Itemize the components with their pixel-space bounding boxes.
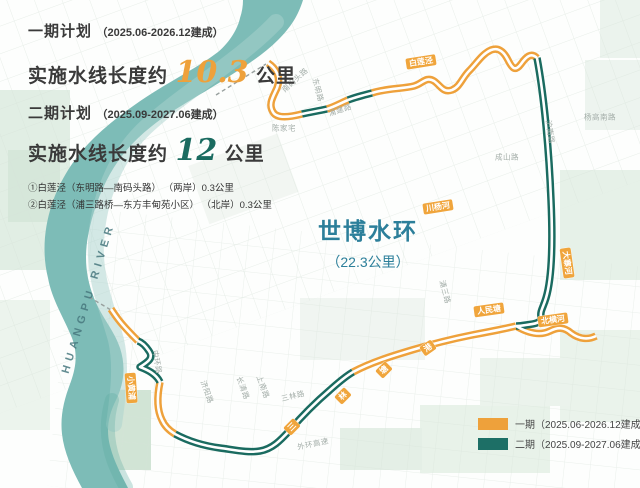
road-label: 三林路 <box>280 388 306 404</box>
phase2-plan-title: 二期计划 <box>28 105 92 122</box>
phase1-length-prefix: 实施水线长度约 <box>28 66 168 87</box>
ring-length: （22.3公里） <box>318 252 418 272</box>
waterway-name-badge: 小黄浦 <box>124 373 137 404</box>
road-label: 济阳路 <box>198 379 217 405</box>
road-label: 浦建路 <box>327 101 353 119</box>
legend-color-swatch <box>478 438 508 450</box>
legend-label: 二期（2025.09-2027.06建成） <box>515 436 640 451</box>
road-label: 长清路 <box>234 375 253 401</box>
waterway-name-badge: 白莲泾 <box>405 54 436 70</box>
plan-header: 一期计划 （2025.06-2026.12建成） 实施水线长度约 10.3 公里… <box>28 20 296 211</box>
road-label: 成山路 <box>495 152 519 163</box>
phase2-length-value: 12 <box>172 133 220 168</box>
waterway-name-badge: 大寨河 <box>559 247 574 278</box>
phase2-length-unit: 公里 <box>225 144 265 165</box>
road-label: 沪南路 <box>543 119 557 144</box>
waterway-name-badge: 人民塘 <box>473 302 504 317</box>
phase2-length-prefix: 实施水线长度约 <box>28 144 168 165</box>
footnote-1: ①白莲泾（东明路—南码头路） （两岸）0.3公里 <box>28 180 296 194</box>
road-label: 杨高南路 <box>584 112 616 123</box>
road-label: 浦三路 <box>437 279 454 305</box>
phase2-plan-dates: （2025.09-2027.06建成） <box>96 109 223 121</box>
phase1-length-value: 10.3 <box>172 55 251 90</box>
road-label: 外环高速 <box>296 435 330 452</box>
expo-water-ring-map: HUANGPU RIVER 白莲泾川杨河大寨河人民塘北横河小黄浦三林塘港东明路南… <box>0 0 640 488</box>
waterway-name-badge: 川杨河 <box>422 199 453 215</box>
legend-item: 一期（2025.06-2026.12建成） <box>478 416 640 431</box>
ring-title-block: 世博水环 （22.3公里） <box>318 212 418 272</box>
legend-item: 二期（2025.09-2027.06建成） <box>478 436 640 451</box>
legend-color-swatch <box>478 418 508 430</box>
phase1-plan-title: 一期计划 <box>28 23 92 40</box>
waterway-name-badge: 塘 <box>375 361 393 379</box>
legend-label: 一期（2025.06-2026.12建成） <box>515 416 640 431</box>
ring-title: 世博水环 <box>318 212 418 246</box>
road-label: 上南路 <box>254 374 273 400</box>
road-label: 中环路 <box>149 349 164 375</box>
waterway-name-badge: 港 <box>419 339 437 356</box>
waterway-name-badge: 三 <box>283 418 301 436</box>
road-label: 东明路 <box>310 77 327 103</box>
phase1-plan-dates: （2025.06-2026.12建成） <box>96 27 223 39</box>
waterway-name-badge: 北横河 <box>537 312 568 327</box>
footnote-2: ②白莲泾（浦三路桥—东方丰甸苑小区） （北岸）0.3公里 <box>28 197 296 211</box>
phase1-length-unit: 公里 <box>256 66 296 87</box>
legend: 一期（2025.06-2026.12建成）二期（2025.09-2027.06建… <box>478 416 640 456</box>
waterway-name-badge: 林 <box>334 387 352 405</box>
